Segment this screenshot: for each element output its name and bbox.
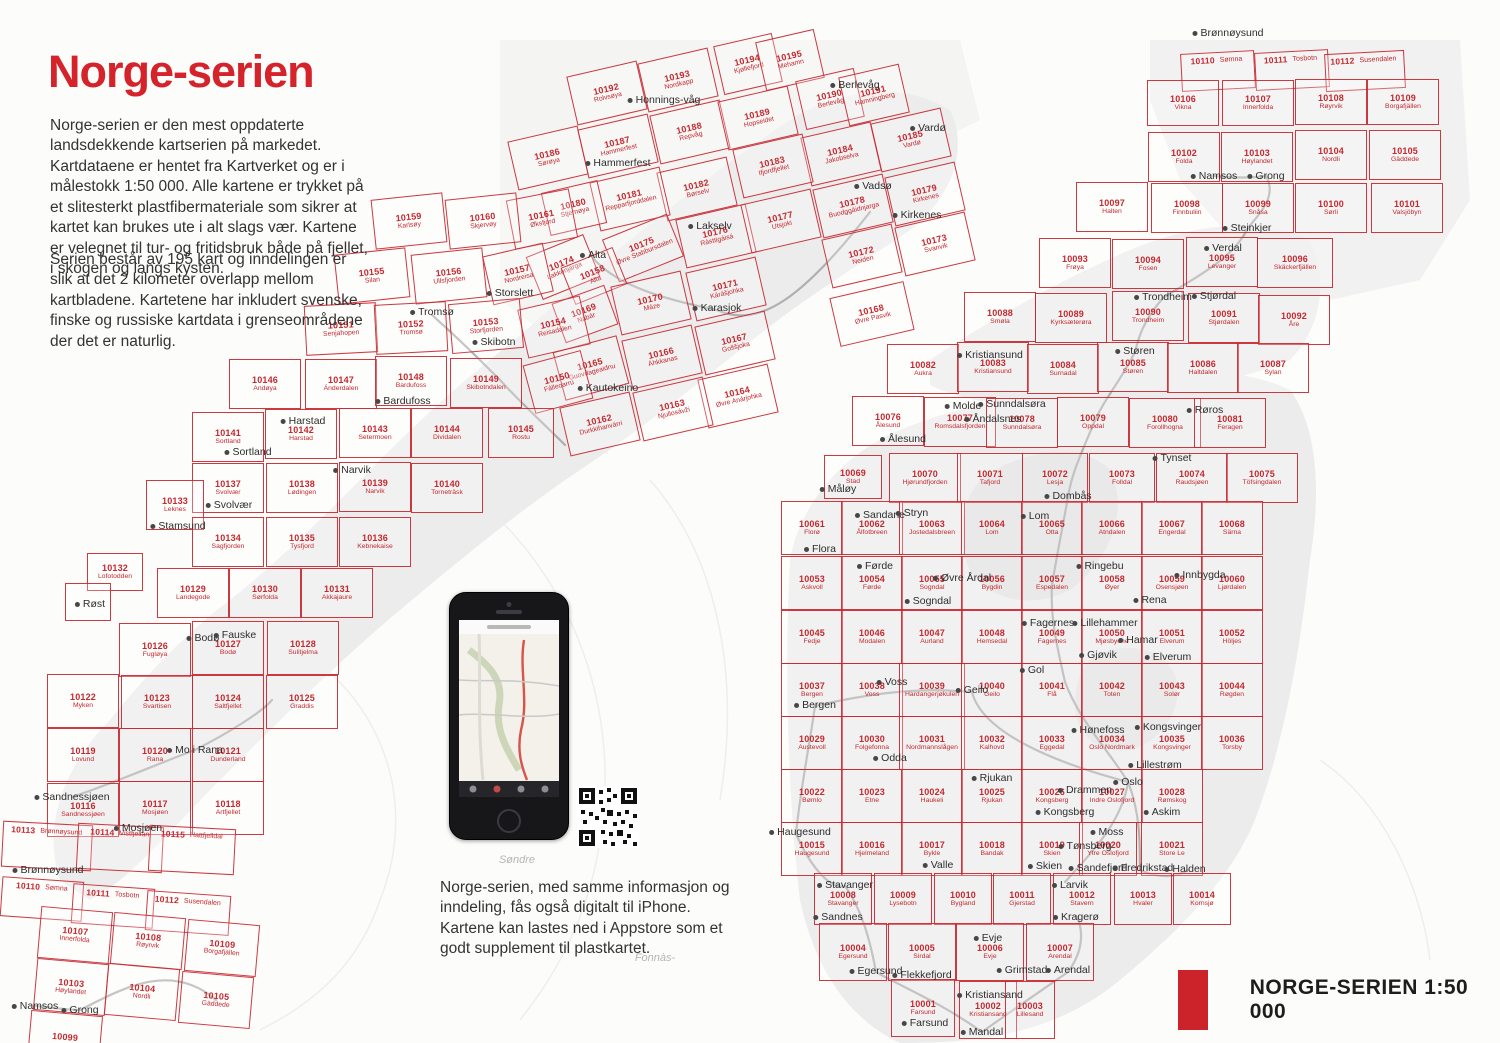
town-dot-icon bbox=[1069, 866, 1074, 871]
sheet-name: Susendalen bbox=[182, 898, 223, 909]
town-label: Kongsberg bbox=[1036, 806, 1095, 818]
map-sheet-10045: 10045Fedje bbox=[781, 610, 843, 664]
map-sheet-10149: 10149Skibotndalen bbox=[450, 358, 522, 408]
town-name: Haugesund bbox=[777, 826, 831, 838]
town-name: Røst bbox=[83, 598, 105, 610]
sheet-name: Bygdin bbox=[980, 584, 1005, 591]
map-sheet-10096: 10096Skäckerfjällen bbox=[1257, 238, 1333, 288]
sheet-name: Elverum bbox=[1158, 638, 1187, 645]
sheet-number: 10144 bbox=[434, 425, 460, 434]
sheet-name: Vikna bbox=[1173, 104, 1194, 111]
town-name: Sunndalsøra bbox=[986, 398, 1046, 410]
sheet-number: 10118 bbox=[215, 800, 241, 809]
map-sheet-10136: 10136Kebnekaise bbox=[339, 517, 411, 567]
sheet-number: 10111 bbox=[1264, 55, 1288, 65]
town-label: Geilo bbox=[956, 684, 989, 696]
town-dot-icon bbox=[1192, 294, 1197, 299]
town-name: Halden bbox=[1172, 863, 1205, 875]
sheet-number: 10051 bbox=[1159, 629, 1185, 638]
sheet-number: 10069 bbox=[840, 469, 866, 478]
sheet-number: 10044 bbox=[1219, 682, 1245, 691]
town-dot-icon bbox=[1028, 864, 1033, 869]
town-label: Tromsø bbox=[410, 306, 454, 318]
sheet-name: Särna bbox=[1221, 529, 1243, 536]
sheet-name: Bandak bbox=[978, 850, 1005, 857]
sheet-number: 10029 bbox=[799, 735, 825, 744]
sheet-name: Hattfjelldal bbox=[188, 832, 225, 842]
town-name: Rjukan bbox=[980, 772, 1013, 784]
map-sheet-10057: 10057Espedalen bbox=[1021, 556, 1083, 610]
sheet-number: 10018 bbox=[979, 841, 1005, 850]
map-sheet-10101: 10101Valsjöbyn bbox=[1371, 183, 1443, 233]
map-sheet-10071: 10071Tafjord bbox=[957, 453, 1023, 503]
town-dot-icon bbox=[873, 756, 878, 761]
town-label: Kirkenes bbox=[893, 209, 942, 221]
map-sheet-10088: 10088Smøla bbox=[964, 292, 1036, 342]
map-sheet-10024: 10024Haukeli bbox=[901, 769, 963, 823]
town-label: Innbygda bbox=[1174, 569, 1225, 581]
sheet-name: Susendalen bbox=[1357, 55, 1398, 65]
sheet-number: 10036 bbox=[1219, 735, 1245, 744]
sheet-number: 10130 bbox=[252, 585, 278, 594]
sheet-number: 10028 bbox=[1159, 788, 1185, 797]
sheet-number: 10110 bbox=[16, 881, 41, 892]
town-label: Hønefoss bbox=[1072, 724, 1125, 736]
town-name: Innbygda bbox=[1182, 569, 1225, 581]
town-dot-icon bbox=[957, 353, 962, 358]
sheet-name: Gäddede bbox=[1389, 156, 1421, 163]
sheet-number: 10039 bbox=[919, 682, 945, 691]
town-dot-icon bbox=[75, 602, 80, 607]
town-name: Stryn bbox=[904, 507, 929, 519]
sheet-number: 10010 bbox=[950, 891, 976, 900]
sheet-name: Bømlo bbox=[800, 797, 824, 804]
map-sheet-10073: 10073Folldal bbox=[1089, 453, 1155, 503]
sheet-number: 10046 bbox=[859, 629, 885, 638]
sheet-number: 10054 bbox=[859, 575, 885, 584]
sheet-name: Ljørdalen bbox=[1216, 584, 1248, 591]
sheet-number: 10124 bbox=[215, 694, 241, 703]
sheet-name: Levanger bbox=[1206, 263, 1238, 270]
town-name: Flekkefjord bbox=[900, 969, 951, 981]
town-name: Arendal bbox=[1054, 964, 1090, 976]
sheet-name: Solør bbox=[1162, 691, 1182, 698]
town-label: Sandnes bbox=[813, 911, 862, 923]
town-label: Ringebu bbox=[1076, 560, 1123, 572]
town-name: Støren bbox=[1123, 345, 1155, 357]
town-dot-icon bbox=[578, 386, 583, 391]
town-label: Kristiansund bbox=[957, 349, 1023, 361]
sheet-number: 10119 bbox=[70, 747, 96, 756]
town-dot-icon bbox=[978, 402, 983, 407]
sheet-number: 10108 bbox=[1318, 94, 1344, 103]
map-sheet-10070: 10070Hjørundfjorden bbox=[889, 453, 961, 503]
sheet-name: Store Le bbox=[1157, 850, 1187, 857]
sheet-number: 10024 bbox=[919, 788, 945, 797]
sheet-name: Folgefonna bbox=[853, 744, 891, 751]
town-dot-icon bbox=[1036, 810, 1041, 815]
town-label: Farsund bbox=[902, 1017, 949, 1029]
town-name: Grong bbox=[69, 1004, 98, 1016]
sheet-name: Svartisen bbox=[141, 703, 173, 710]
town-name: Åndalsnes bbox=[972, 413, 1021, 425]
map-sheet-10092: 10092Åre bbox=[1258, 295, 1330, 345]
town-dot-icon bbox=[1128, 763, 1133, 768]
sheet-name: Lesja bbox=[1045, 479, 1065, 486]
map-sheet-10060: 10060Ljørdalen bbox=[1201, 556, 1263, 610]
town-name: Dombås bbox=[1052, 490, 1091, 502]
town-dot-icon bbox=[923, 863, 928, 868]
town-dot-icon bbox=[1021, 514, 1026, 519]
sheet-number: 10110 bbox=[1190, 56, 1215, 66]
town-dot-icon bbox=[850, 969, 855, 974]
sheet-name: Oslo Nordmark bbox=[1087, 744, 1137, 751]
iphone-mockup bbox=[449, 592, 569, 840]
sheet-number: 10114 bbox=[90, 827, 115, 837]
town-name: Lillehammer bbox=[1080, 617, 1137, 629]
town-dot-icon bbox=[794, 703, 799, 708]
sheet-number: 10120 bbox=[142, 747, 168, 756]
map-sheet-10109: 10109Borgafjällen bbox=[1367, 79, 1439, 125]
sheet-name: Kristiansund bbox=[972, 368, 1013, 375]
town-label: Fauske bbox=[214, 629, 256, 641]
sheet-name: Snåsa bbox=[1246, 209, 1269, 216]
sheet-number: 10073 bbox=[1109, 470, 1135, 479]
sheet-name: Farsund bbox=[909, 1009, 938, 1016]
town-name: Moss bbox=[1098, 826, 1123, 838]
map-sheet-10013: 10013Hvaler bbox=[1114, 873, 1172, 925]
town-name: Kristiansund bbox=[965, 349, 1023, 361]
town-name: Farsund bbox=[910, 1017, 949, 1029]
town-name: Mandal bbox=[969, 1026, 1003, 1038]
sheet-name: Hardangerjøkulen bbox=[903, 691, 961, 698]
town-dot-icon bbox=[1053, 915, 1058, 920]
sheet-name: Töfsingdalen bbox=[1241, 479, 1284, 486]
town-dot-icon bbox=[333, 468, 338, 473]
town-dot-icon bbox=[61, 1008, 66, 1013]
sheet-number: 10102 bbox=[1171, 149, 1197, 158]
town-dot-icon bbox=[854, 184, 859, 189]
town-dot-icon bbox=[857, 564, 862, 569]
map-sheet-10032: 10032Kalhovd bbox=[961, 716, 1023, 770]
sheet-number: 10115 bbox=[161, 829, 186, 839]
town-dot-icon bbox=[974, 936, 979, 941]
sheet-name: Skäckerfjällen bbox=[1272, 264, 1318, 271]
map-sheet-10156: 10156Ullsfjorden bbox=[411, 247, 488, 304]
sheet-number: 10112 bbox=[154, 895, 179, 906]
town-label: Åndalsnes bbox=[964, 413, 1021, 425]
map-sheet-10160: 10160Skjervøy bbox=[445, 192, 522, 249]
sheet-name: Bergen bbox=[799, 691, 825, 698]
town-name: Karasjok bbox=[701, 302, 742, 314]
sheet-name: Kristiansand bbox=[967, 1011, 1008, 1018]
town-label: Askim bbox=[1144, 806, 1181, 818]
sheet-name: Frøya bbox=[1064, 264, 1086, 271]
town-label: Lom bbox=[1021, 510, 1049, 522]
phone-screen-map-app bbox=[459, 620, 559, 797]
town-name: Elverum bbox=[1153, 651, 1192, 663]
sheet-number: 10021 bbox=[1159, 841, 1185, 850]
town-dot-icon bbox=[1020, 668, 1025, 673]
sheet-number: 10033 bbox=[1039, 735, 1065, 744]
town-dot-icon bbox=[964, 417, 969, 422]
sheet-number: 10084 bbox=[1050, 361, 1076, 370]
town-name: Harstad bbox=[289, 415, 326, 427]
sheet-name: Bygland bbox=[949, 900, 978, 907]
sheet-name: Dunderland bbox=[208, 756, 247, 763]
town-dot-icon bbox=[1115, 349, 1120, 354]
town-name: Ringebu bbox=[1084, 560, 1123, 572]
sheet-name: Støren bbox=[1121, 368, 1145, 375]
town-dot-icon bbox=[1204, 246, 1209, 251]
town-dot-icon bbox=[1052, 883, 1057, 888]
town-dot-icon bbox=[813, 915, 818, 920]
sheet-number: 10100 bbox=[1318, 200, 1344, 209]
town-dot-icon bbox=[410, 310, 415, 315]
sheet-number: 10016 bbox=[859, 841, 885, 850]
town-name: Kongsberg bbox=[1044, 806, 1095, 818]
town-name: Tynset bbox=[1161, 452, 1192, 464]
sheet-name: Aukra bbox=[912, 370, 934, 377]
sheet-number: 10064 bbox=[979, 520, 1005, 529]
sheet-name: Leknes bbox=[162, 506, 188, 513]
town-name: Honnings-våg bbox=[636, 94, 701, 106]
town-name: Narvik bbox=[341, 464, 371, 476]
sheet-name: Fugløya bbox=[141, 651, 170, 658]
sheet-name: Smøla bbox=[988, 318, 1012, 325]
map-sheet-10014: 10014Kornsjø bbox=[1173, 873, 1231, 925]
sheet-number: 10131 bbox=[324, 585, 350, 594]
town-label: Stryn bbox=[896, 507, 929, 519]
town-dot-icon bbox=[1044, 494, 1049, 499]
sheet-name: Harstad bbox=[287, 435, 315, 442]
town-label: Drammen bbox=[1058, 784, 1112, 796]
town-label: Moss bbox=[1090, 826, 1123, 838]
town-dot-icon bbox=[12, 1004, 17, 1009]
sheet-number: 10126 bbox=[142, 642, 168, 651]
town-name: Hamar bbox=[1126, 634, 1158, 646]
sheet-number: 10097 bbox=[1099, 199, 1125, 208]
town-label: Kautokeino bbox=[578, 382, 639, 394]
town-dot-icon bbox=[472, 340, 477, 345]
town-label: Øvre Årdal bbox=[933, 572, 991, 584]
town-name: Geilo bbox=[964, 684, 989, 696]
sheet-name: Kongsvinger bbox=[1151, 744, 1193, 751]
sheet-number: 10143 bbox=[362, 425, 388, 434]
sheet-name: Kyrksæterøra bbox=[1048, 319, 1093, 326]
map-sheet-10105: 10105Gäddede bbox=[178, 971, 254, 1029]
legend-label: NORGE-SERIEN 1:50 000 bbox=[1250, 976, 1500, 1024]
sheet-name: Trondheim bbox=[1130, 317, 1166, 324]
map-sheet-10018: 10018Bandak bbox=[961, 822, 1023, 876]
town-dot-icon bbox=[1223, 226, 1228, 231]
town-label: Narvik bbox=[333, 464, 371, 476]
town-name: Storslett bbox=[495, 287, 534, 299]
map-sheet-10044: 10044Røgden bbox=[1201, 663, 1263, 717]
town-dot-icon bbox=[933, 576, 938, 581]
town-label: Odda bbox=[873, 752, 907, 764]
map-sheet-10046: 10046Modalen bbox=[841, 610, 903, 664]
sheet-number: 10067 bbox=[1159, 520, 1185, 529]
sheet-name: Gäddede bbox=[199, 1000, 231, 1010]
town-dot-icon bbox=[580, 253, 585, 258]
town-label: Grong bbox=[1247, 170, 1284, 182]
town-label: Haugesund bbox=[769, 826, 831, 838]
town-label: Mandal bbox=[961, 1026, 1003, 1038]
town-label: Namsos bbox=[1191, 170, 1238, 182]
town-dot-icon bbox=[1059, 844, 1064, 849]
sheet-name: Sagfjorden bbox=[210, 543, 247, 550]
map-sheet-10146: 10146Andøya bbox=[229, 359, 301, 409]
town-dot-icon bbox=[1079, 653, 1084, 658]
map-sheet-10094: 10094Fosen bbox=[1112, 239, 1184, 289]
sheet-number: 10052 bbox=[1219, 629, 1245, 638]
town-dot-icon bbox=[905, 599, 910, 604]
town-dot-icon bbox=[1191, 174, 1196, 179]
map-sheet-10022: 10022Bømlo bbox=[781, 769, 843, 823]
sheet-number: 10066 bbox=[1099, 520, 1125, 529]
town-name: Skien bbox=[1036, 860, 1062, 872]
sheet-name: Fosen bbox=[1137, 265, 1160, 272]
sheet-name: Nordmannslågen bbox=[904, 744, 960, 751]
town-name: Odda bbox=[881, 752, 907, 764]
town-name: Kristiansand bbox=[965, 989, 1023, 1001]
town-name: Trondheim bbox=[1142, 291, 1192, 303]
map-sheet-10011: 10011Gjerstad bbox=[993, 873, 1051, 925]
town-dot-icon bbox=[1247, 174, 1252, 179]
sheet-name: Akkajaure bbox=[320, 594, 354, 601]
sheet-name: Eggedal bbox=[1038, 744, 1067, 751]
sheet-number: 10080 bbox=[1152, 415, 1178, 424]
sheet-number: 10106 bbox=[1170, 95, 1196, 104]
town-dot-icon bbox=[1153, 456, 1158, 461]
sheet-name: Engerdal bbox=[1156, 529, 1187, 536]
town-label: Evje bbox=[974, 932, 1002, 944]
sheet-name: Ålesund bbox=[874, 422, 903, 429]
sheet-name: Kalhovd bbox=[978, 744, 1007, 751]
sheet-name: Hemsedal bbox=[975, 638, 1010, 645]
sheet-name: Kornsjø bbox=[1188, 900, 1215, 907]
town-dot-icon bbox=[1144, 810, 1149, 815]
town-name: Ålesund bbox=[888, 433, 926, 445]
sheet-number: 10104 bbox=[1318, 147, 1344, 156]
sheet-name: Egersund bbox=[836, 953, 869, 960]
sheet-number: 10012 bbox=[1069, 891, 1095, 900]
sheet-number: 10146 bbox=[252, 376, 278, 385]
town-name: Berlevåg bbox=[838, 79, 879, 91]
sheet-name: Stavanger bbox=[826, 900, 861, 907]
sheet-name: Tromsø bbox=[397, 328, 425, 337]
sheet-name: Rana bbox=[145, 756, 165, 763]
town-dot-icon bbox=[956, 688, 961, 693]
sheet-number: 10086 bbox=[1190, 360, 1216, 369]
map-sheet-10123: 10123Svartisen bbox=[121, 675, 193, 729]
town-label: Larvik bbox=[1052, 879, 1088, 891]
map-sheet-10093: 10093Frøya bbox=[1039, 238, 1111, 288]
sheet-name: Sørli bbox=[1322, 209, 1340, 216]
sheet-name: Indre Oslofjord bbox=[1088, 797, 1137, 804]
town-dot-icon bbox=[214, 633, 219, 638]
sheet-name: Kebnekaise bbox=[355, 543, 395, 550]
sheet-name: Fedje bbox=[801, 638, 822, 645]
town-dot-icon bbox=[1164, 867, 1169, 872]
map-sheet-10082: 10082Aukra bbox=[887, 344, 959, 394]
sheet-name: Toten bbox=[1102, 691, 1123, 698]
town-dot-icon bbox=[945, 404, 950, 409]
sheet-name: Lom bbox=[983, 529, 1000, 536]
town-dot-icon bbox=[855, 513, 860, 518]
sheet-number: 10103 bbox=[1244, 149, 1270, 158]
sheet-number: 10140 bbox=[434, 480, 460, 489]
sheet-number: 10092 bbox=[1281, 312, 1307, 321]
sheet-number: 10025 bbox=[979, 788, 1005, 797]
sheet-number: 10035 bbox=[1159, 735, 1185, 744]
sheet-name: Landegode bbox=[174, 594, 212, 601]
town-label: Hammerfest bbox=[585, 157, 650, 169]
sheet-name: Ålfotbreen bbox=[855, 529, 890, 536]
sheet-name: Øyer bbox=[1103, 584, 1122, 591]
sheet-name: Setermoen bbox=[356, 434, 393, 441]
town-label: Storslett bbox=[487, 287, 534, 299]
sheet-number: 10082 bbox=[910, 361, 936, 370]
town-label: Bardufoss bbox=[375, 395, 430, 407]
sheet-name: Nordli bbox=[1320, 156, 1342, 163]
sheet-name: Espedalen bbox=[1034, 584, 1070, 591]
sheet-name: Høylandet bbox=[1240, 158, 1275, 165]
sheet-name: Sømna bbox=[1218, 56, 1245, 65]
town-label: Steinkjer bbox=[1223, 222, 1272, 234]
map-sheet-10098: 10098Finnbuliin bbox=[1151, 183, 1223, 233]
town-dot-icon bbox=[1058, 788, 1063, 793]
sheet-number: 10090 bbox=[1135, 308, 1161, 317]
sheet-name: Etne bbox=[863, 797, 881, 804]
town-dot-icon bbox=[34, 795, 39, 800]
sheet-name: Røyrvik bbox=[1317, 103, 1344, 110]
town-dot-icon bbox=[1113, 866, 1118, 871]
sheet-number: 10085 bbox=[1120, 359, 1146, 368]
town-name: Mo i Rana bbox=[175, 744, 223, 756]
map-sheet-10064: 10064Lom bbox=[961, 501, 1023, 555]
sheet-name: Forollhogna bbox=[1145, 424, 1185, 431]
sheet-name: Røgden bbox=[1218, 691, 1246, 698]
sheet-number: 10079 bbox=[1080, 414, 1106, 423]
sheet-name: Modalen bbox=[857, 638, 887, 645]
map-sheet-10086: 10086Haltdalen bbox=[1167, 343, 1239, 393]
town-dot-icon bbox=[206, 503, 211, 508]
map-sheet-10147: 10147Ánderdalen bbox=[305, 359, 377, 409]
town-name: Grong bbox=[1255, 170, 1284, 182]
map-sheet-10107: 10107Innerfolda bbox=[1222, 80, 1294, 126]
sheet-number: 10032 bbox=[979, 735, 1005, 744]
town-dot-icon bbox=[902, 1021, 907, 1026]
sheet-number: 10041 bbox=[1039, 682, 1065, 691]
sheet-number: 10053 bbox=[799, 575, 825, 584]
town-name: Kongsvinger bbox=[1143, 721, 1201, 733]
sheet-number: 10094 bbox=[1135, 256, 1161, 265]
series-paragraph: Serien består av 195 kart og inndelingen… bbox=[50, 250, 368, 352]
town-dot-icon bbox=[1076, 564, 1081, 569]
town-name: Vardø bbox=[918, 122, 946, 134]
town-dot-icon bbox=[880, 437, 885, 442]
sheet-name: Andøya bbox=[251, 385, 278, 392]
town-label: Honnings-våg bbox=[628, 94, 701, 106]
sheet-number: 10112 bbox=[1330, 57, 1355, 67]
town-dot-icon bbox=[961, 1030, 966, 1035]
map-sheet-10159: 10159Karlsøy bbox=[371, 192, 448, 249]
town-dot-icon bbox=[1133, 598, 1138, 603]
town-name: Sogndal bbox=[913, 595, 952, 607]
town-name: Øvre Årdal bbox=[941, 572, 991, 584]
